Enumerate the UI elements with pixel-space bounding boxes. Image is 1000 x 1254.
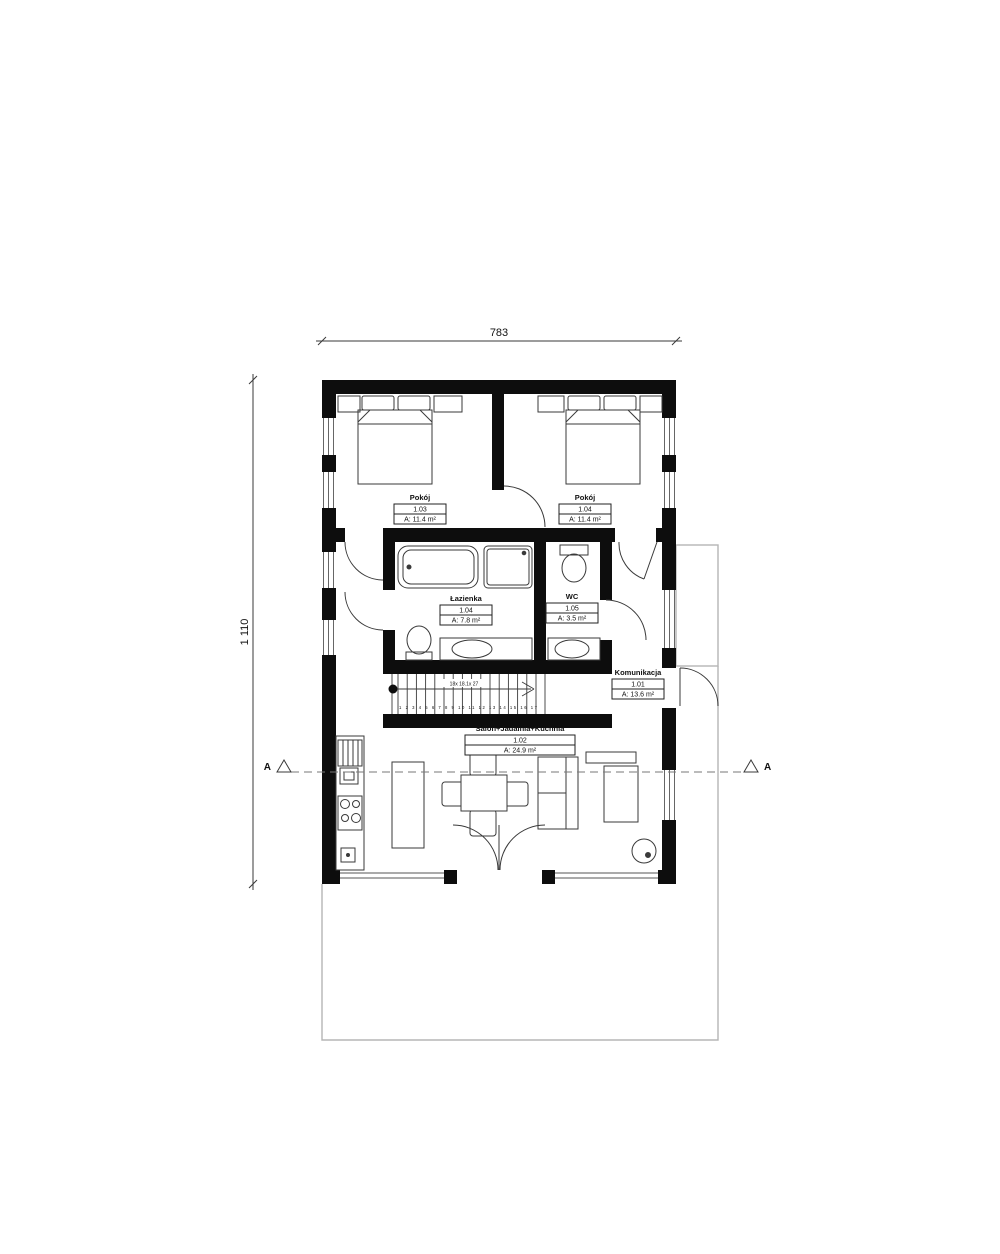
wall-left-seg — [322, 455, 336, 472]
wall-bedrooms-bottom — [656, 528, 662, 542]
wall-bottom-corner-left — [322, 870, 340, 884]
wall-wc-east — [600, 640, 612, 660]
wall-left-seg — [322, 380, 336, 418]
stair-arrowhead — [522, 682, 534, 689]
shower-drain — [522, 551, 526, 555]
section-triangle-right — [744, 760, 758, 772]
wall-bath-bottom — [383, 660, 612, 674]
stove-burner — [341, 800, 350, 809]
pillow — [604, 396, 636, 410]
stove-burner — [342, 815, 349, 822]
room-area: A: 11.4 m² — [569, 517, 601, 524]
room-name: Pokój — [575, 493, 595, 502]
kitchen-small-unit-dot — [347, 854, 350, 857]
door-arc-entrance-left — [453, 825, 498, 870]
section-triangle-left — [277, 760, 291, 772]
bathtub-inner — [403, 550, 474, 584]
bathtub-faucet — [407, 565, 411, 569]
chair — [470, 810, 496, 836]
stair-newel-post — [389, 685, 398, 694]
room-number: 1.04 — [459, 608, 473, 615]
window-left-2 — [324, 472, 334, 508]
section-label-right: A — [764, 762, 771, 773]
wall-left-seg — [322, 508, 336, 552]
wall-bottom-corner-right — [658, 870, 676, 884]
stove-burner — [352, 814, 361, 823]
pillow — [362, 396, 394, 410]
entrance-double-door — [453, 825, 545, 870]
wall-left-seg — [322, 588, 336, 620]
room-name: WC — [566, 592, 579, 601]
chair — [504, 782, 528, 806]
plant — [632, 839, 656, 863]
wall-bedrooms-bottom — [383, 528, 615, 542]
washbasin-wc — [555, 640, 589, 658]
nightstand — [338, 396, 360, 412]
door-leaf-corridor — [644, 542, 657, 579]
pillow — [568, 396, 600, 410]
toilet-bowl-bath — [407, 626, 431, 654]
label-lazienka: Łazienka 1.04 A: 7.8 m² — [440, 594, 492, 625]
window-left-3 — [324, 552, 334, 588]
room-area: A: 11.4 m² — [404, 517, 436, 524]
dimension-width-label: 783 — [490, 327, 508, 339]
bed — [358, 410, 432, 484]
nightstand — [538, 396, 564, 412]
door-arc-bedroom-103 — [345, 542, 383, 580]
room-name: Salon+Jadalnia+Kuchnia — [476, 724, 566, 733]
wall-right-seg — [662, 455, 676, 472]
stair-notation: 18x 18.1x 27 — [450, 682, 479, 688]
dimension-left: 1 110 — [239, 374, 257, 890]
room-area: A: 13.6 m² — [622, 692, 655, 699]
door-arc-corridor — [619, 542, 644, 579]
room-number: 1.04 — [578, 507, 592, 514]
bedroom-103-furniture — [338, 396, 462, 484]
room-number: 1.02 — [513, 738, 527, 745]
room-name: Łazienka — [450, 594, 483, 603]
window-right-4 — [665, 770, 675, 820]
door-jamb-right — [542, 870, 555, 884]
room-area: A: 7.8 m² — [452, 618, 481, 625]
floor-plan-canvas: 18x 18.1x 27 1 2 3 4 5 6 7 8 9 10 11 12 … — [0, 0, 1000, 1254]
bed-corner-fold — [628, 410, 640, 422]
label-pokoj-103: Pokój 1.03 A: 11.4 m² — [394, 493, 446, 524]
plant-center — [646, 853, 651, 858]
terrace-outline — [322, 545, 718, 1040]
window-left-4 — [324, 620, 334, 655]
kitchen-unit — [340, 768, 358, 784]
nightstand — [640, 396, 662, 412]
wall-bedrooms-bottom — [336, 528, 345, 542]
bed — [566, 410, 640, 484]
door-arc-balcony — [680, 668, 718, 706]
kitchen-living-furniture — [336, 736, 656, 870]
label-salon: Salon+Jadalnia+Kuchnia 1.02 A: 24.9 m² — [465, 724, 575, 755]
wall-bedroom-divider-stub — [492, 482, 504, 490]
window-right-1 — [665, 418, 675, 455]
room-number: 1.05 — [565, 606, 579, 613]
room-number: 1.03 — [413, 507, 427, 514]
wall-bath-west — [383, 542, 395, 590]
door-balcony — [680, 668, 718, 706]
wall-left-seg — [322, 655, 336, 884]
stair-arrowhead — [522, 689, 534, 696]
bed-corner-fold — [566, 410, 578, 422]
console-shelf — [586, 752, 636, 763]
bedroom-104-furniture — [538, 396, 662, 484]
label-wc: WC 1.05 A: 3.5 m² — [546, 592, 598, 623]
section-label-left: A — [264, 762, 271, 773]
wall-right-seg — [662, 380, 676, 418]
window-right-2 — [665, 472, 675, 508]
window-wall-bottom — [340, 873, 658, 878]
vanity-counter-bath — [440, 638, 532, 660]
room-name: Komunikacja — [615, 668, 663, 677]
wall-bedroom-divider — [492, 394, 504, 482]
room-number: 1.01 — [631, 682, 645, 689]
room-area: A: 3.5 m² — [558, 616, 587, 623]
wall-bath-west — [383, 630, 395, 660]
wall-right-seg — [662, 708, 676, 770]
wall-right-seg — [662, 508, 676, 590]
door-arc-entrance-right — [500, 825, 545, 870]
vanity-counter-wc — [548, 638, 600, 660]
room-area: A: 24.9 m² — [504, 748, 537, 755]
washbasin-bath — [452, 640, 492, 658]
pillow — [398, 396, 430, 410]
door-arc-wc — [606, 600, 646, 640]
nightstand — [434, 396, 462, 412]
dimension-height-label: 1 110 — [239, 619, 251, 646]
label-pokoj-104: Pokój 1.04 A: 11.4 m² — [559, 493, 611, 524]
bed-corner-fold — [420, 410, 432, 422]
kitchen-unit-inner — [344, 772, 354, 780]
toilet-bowl-wc — [562, 554, 586, 582]
door-corridor — [619, 542, 657, 579]
dining-table — [461, 775, 507, 811]
side-table — [604, 766, 638, 822]
stove-burner — [353, 801, 360, 808]
balcony-outline — [676, 545, 718, 666]
wall-right-seg — [662, 648, 676, 668]
toilet-tank-bath — [406, 652, 432, 660]
wall-bath-wc-divider — [534, 542, 546, 660]
door-arc-bathroom — [345, 592, 383, 630]
wall-top — [322, 380, 676, 394]
window-right-3 — [665, 590, 675, 648]
wall-wc-east — [600, 542, 612, 600]
floor-plan-page: 18x 18.1x 27 1 2 3 4 5 6 7 8 9 10 11 12 … — [0, 0, 1000, 1254]
kitchen-island — [392, 762, 424, 848]
room-name: Pokój — [410, 493, 430, 502]
door-jamb-left — [444, 870, 457, 884]
door-arc-bedroom-104 — [504, 486, 545, 527]
stair-step-numbers: 1 2 3 4 5 6 7 8 9 10 11 12 13 14 15 16 1… — [399, 705, 538, 710]
window-left-1 — [324, 418, 334, 455]
dimension-top: 783 — [316, 327, 682, 345]
stairs: 18x 18.1x 27 1 2 3 4 5 6 7 8 9 10 11 12 … — [389, 674, 546, 714]
label-komunikacja: Komunikacja 1.01 A: 13.6 m² — [612, 668, 664, 699]
